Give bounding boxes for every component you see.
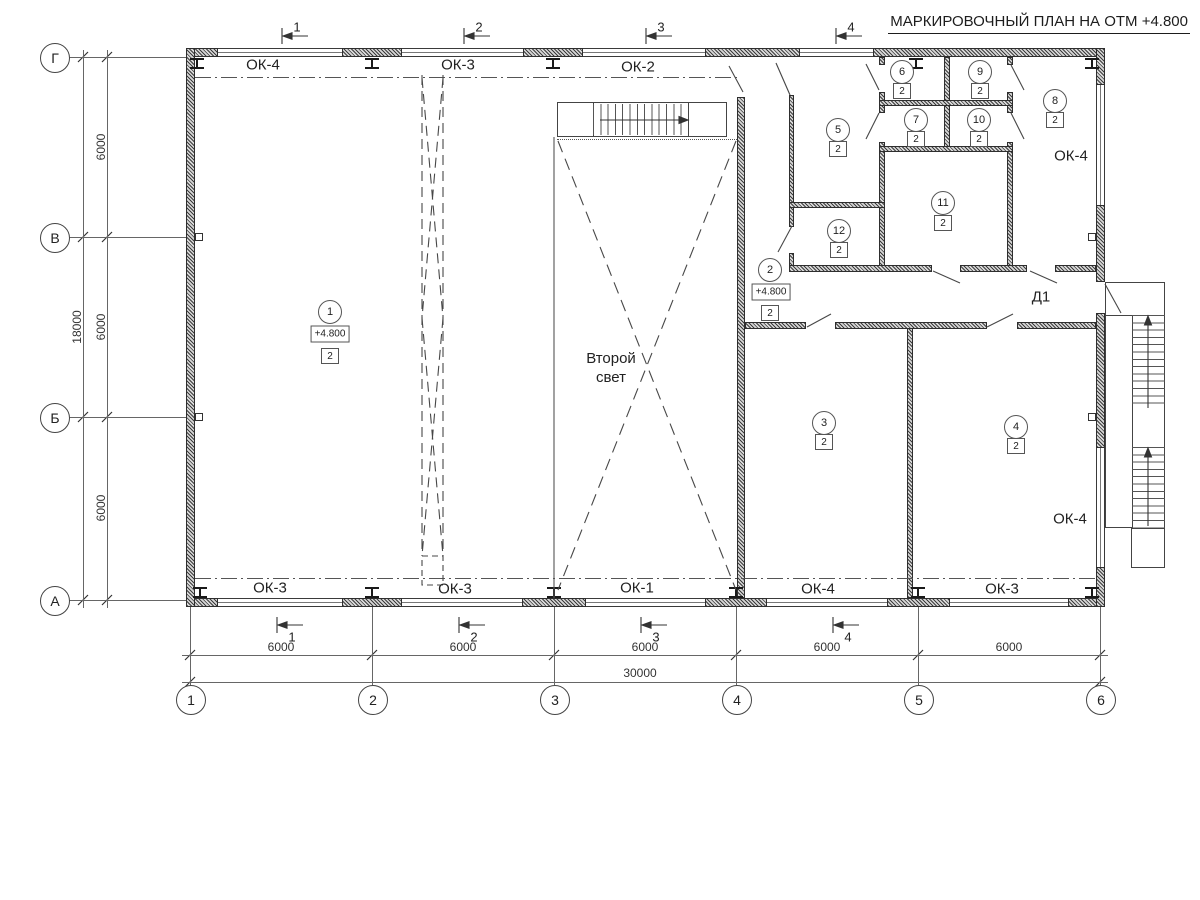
grid-bubble-row: В	[40, 223, 70, 253]
dim-text: 6000	[94, 495, 108, 522]
section-mark-number: 4	[844, 630, 851, 645]
column-mark	[1088, 413, 1096, 421]
room-finish-text: 2	[836, 245, 842, 256]
column-ibeam-icon	[911, 587, 925, 598]
grid-bubble-col: 3	[540, 685, 570, 715]
partition	[789, 265, 932, 272]
room-number-text: 7	[913, 114, 919, 126]
window-band	[586, 598, 705, 607]
partition	[960, 265, 1027, 272]
room-finish-text: 2	[977, 86, 983, 97]
window-label: ОК-3	[253, 580, 287, 597]
window-band	[583, 48, 705, 57]
room-finish-text: 2	[976, 134, 982, 145]
room-finish-text: 2	[835, 144, 841, 155]
room-number: 8	[1043, 89, 1067, 113]
window-band	[767, 598, 887, 607]
room-finish-text: 2	[327, 351, 333, 362]
room-number-text: 8	[1052, 95, 1058, 107]
axis-line	[554, 607, 555, 685]
section-mark-number: 2	[475, 20, 482, 35]
room-level-text: +4.800	[315, 329, 346, 340]
window-label: ОК-3	[441, 57, 475, 74]
axis-line	[68, 57, 186, 58]
room-number: 9	[968, 60, 992, 84]
section-mark-number: 3	[652, 630, 659, 645]
wall-segment	[705, 598, 767, 607]
room-number-text: 2	[767, 264, 773, 276]
partition	[1055, 265, 1096, 272]
column-ibeam-icon	[546, 58, 560, 69]
column-ibeam-icon	[1085, 587, 1099, 598]
column-ibeam-icon	[365, 58, 379, 69]
section-mark-number: 4	[847, 20, 854, 35]
axis-line	[1100, 607, 1101, 685]
grid-col-label: 2	[369, 692, 377, 708]
grid-bubble-col: 4	[722, 685, 752, 715]
axis-line	[372, 607, 373, 685]
axis-line	[68, 417, 186, 418]
stair-treads	[593, 104, 688, 135]
room-finish-text: 2	[821, 437, 827, 448]
room-finish: 2	[1007, 438, 1025, 454]
partition	[1007, 142, 1013, 272]
column-mark	[195, 233, 203, 241]
column-ibeam-icon	[365, 587, 379, 598]
room-finish-text: 2	[1052, 115, 1058, 126]
wall-segment	[1096, 205, 1105, 282]
dim-line	[182, 682, 1108, 683]
room-number-text: 11	[937, 197, 948, 209]
room-number: 1	[318, 300, 342, 324]
room-finish-text: 2	[940, 218, 946, 229]
window-band	[218, 598, 342, 607]
room-number: 5	[826, 118, 850, 142]
grid-bubble-col: 1	[176, 685, 206, 715]
window-label: ОК-1	[620, 580, 654, 597]
room-number-text: 9	[977, 66, 983, 78]
grid-col-label: 5	[915, 692, 923, 708]
door-tag: Д1	[1032, 289, 1051, 306]
room-finish: 2	[761, 305, 779, 321]
axis-line	[918, 607, 919, 685]
grid-row-label: А	[50, 593, 59, 609]
axis-line	[190, 607, 191, 685]
section-mark-number: 2	[470, 630, 477, 645]
room-number: 4	[1004, 415, 1028, 439]
room-number: 6	[890, 60, 914, 84]
room-number: 7	[904, 108, 928, 132]
wall-segment	[1096, 313, 1105, 448]
room-finish: 2	[321, 348, 339, 364]
room-number: 11	[931, 191, 955, 215]
dim-text-total: 30000	[623, 666, 656, 680]
room-number: 3	[812, 411, 836, 435]
wall-segment	[873, 48, 1105, 57]
room-number-text: 4	[1013, 421, 1019, 433]
room-finish: 2	[970, 131, 988, 147]
partition	[879, 57, 885, 65]
grid-col-label: 4	[733, 692, 741, 708]
grid-col-label: 1	[187, 692, 195, 708]
window-label: ОК-4	[801, 581, 835, 598]
room-number-text: 1	[327, 306, 333, 318]
dim-text: 6000	[94, 134, 108, 161]
room-finish: 2	[934, 215, 952, 231]
window-label: ОК-2	[621, 59, 655, 76]
axis-line	[68, 237, 186, 238]
stair-landing	[1131, 528, 1165, 568]
drawing-title: МАРКИРОВОЧНЫЙ ПЛАН НА ОТМ +4.800	[888, 13, 1190, 34]
room-number-text: 12	[833, 225, 845, 237]
window-band	[800, 48, 873, 57]
room-number-text: 6	[899, 66, 905, 78]
column-mark	[195, 413, 203, 421]
stair-outline	[1105, 282, 1165, 283]
partition	[1017, 322, 1096, 329]
column-mark	[1088, 233, 1096, 241]
room-number: 10	[967, 108, 991, 132]
partition	[879, 100, 1013, 106]
dim-text: 6000	[814, 640, 841, 654]
window-label: ОК-3	[438, 581, 472, 598]
stair-landing-line	[688, 102, 689, 137]
wall-segment	[907, 328, 913, 598]
window-band	[402, 598, 522, 607]
column-ibeam-icon	[1085, 58, 1099, 69]
wall-segment	[705, 48, 800, 57]
room-number-text: 10	[973, 114, 985, 126]
window-band	[1096, 85, 1105, 205]
room-finish: 2	[830, 242, 848, 258]
room-finish: 2	[893, 83, 911, 99]
window-label: ОК-3	[985, 581, 1019, 598]
second-light-line1: Второй	[586, 349, 636, 368]
grid-bubble-col: 5	[904, 685, 934, 715]
dim-line	[182, 655, 1108, 656]
grid-bubble-row: А	[40, 586, 70, 616]
section-mark-number: 1	[288, 630, 295, 645]
room-level-text: +4.800	[756, 287, 787, 298]
room-finish-text: 2	[1013, 441, 1019, 452]
dim-text-total: 18000	[70, 310, 84, 343]
room-number-text: 5	[835, 124, 841, 136]
wall-segment	[523, 48, 583, 57]
section-mark-number: 3	[657, 20, 664, 35]
wall-segment	[887, 598, 950, 607]
window-label: ОК-4	[1053, 511, 1087, 528]
wall-segment	[342, 598, 402, 607]
axis-line	[68, 600, 186, 601]
column-ibeam-icon	[729, 587, 743, 598]
grid-row-label: В	[50, 230, 59, 246]
dashdot-line	[195, 77, 737, 78]
stair-landing-line	[1105, 527, 1133, 528]
wall-segment	[186, 48, 195, 607]
room-finish: 2	[971, 83, 989, 99]
partition	[1007, 57, 1013, 65]
window-band	[950, 598, 1068, 607]
window-label: ОК-4	[246, 57, 280, 74]
wall-segment	[737, 97, 745, 598]
grid-row-label: Б	[50, 410, 59, 426]
room-finish: 2	[815, 434, 833, 450]
room-finish-text: 2	[913, 134, 919, 145]
window-band	[218, 48, 342, 57]
wall-segment	[522, 598, 586, 607]
grid-bubble-col: 2	[358, 685, 388, 715]
column-ibeam-icon	[193, 587, 207, 598]
dim-text: 6000	[996, 640, 1023, 654]
second-light-label: Второй свет	[586, 349, 636, 387]
room-number-text: 3	[821, 417, 827, 429]
grid-col-label: 3	[551, 692, 559, 708]
room-finish-text: 2	[899, 86, 905, 97]
dim-text: 6000	[94, 314, 108, 341]
room-level: +4.800	[311, 326, 350, 343]
stair-outline	[1105, 282, 1106, 528]
stair-treads	[1132, 315, 1165, 410]
column-ibeam-icon	[190, 58, 204, 69]
grid-row-label: Г	[51, 50, 59, 66]
room-finish: 2	[829, 141, 847, 157]
room-level: +4.800	[752, 284, 791, 301]
partition	[789, 202, 885, 208]
axis-line	[736, 607, 737, 685]
floor-plan-sheet: МАРКИРОВОЧНЫЙ ПЛАН НА ОТМ +4.800	[0, 0, 1200, 900]
column-ibeam-icon	[547, 587, 561, 598]
window-band	[1096, 448, 1105, 567]
grid-col-label: 6	[1097, 692, 1105, 708]
partition	[879, 146, 1013, 152]
partition	[835, 322, 987, 329]
stair-treads	[1132, 447, 1165, 528]
grid-bubble-row: Г	[40, 43, 70, 73]
partition	[745, 322, 806, 329]
wall-segment	[342, 48, 402, 57]
room-finish: 2	[1046, 112, 1064, 128]
second-light-line2: свет	[586, 368, 636, 387]
window-label: ОК-4	[1054, 148, 1088, 165]
opening-edge-line	[557, 139, 737, 140]
room-finish: 2	[907, 131, 925, 147]
section-mark-number: 1	[293, 20, 300, 35]
room-number: 2	[758, 258, 782, 282]
room-number: 12	[827, 219, 851, 243]
room-finish-text: 2	[767, 308, 773, 319]
grid-bubble-row: Б	[40, 403, 70, 433]
grid-bubble-col: 6	[1086, 685, 1116, 715]
